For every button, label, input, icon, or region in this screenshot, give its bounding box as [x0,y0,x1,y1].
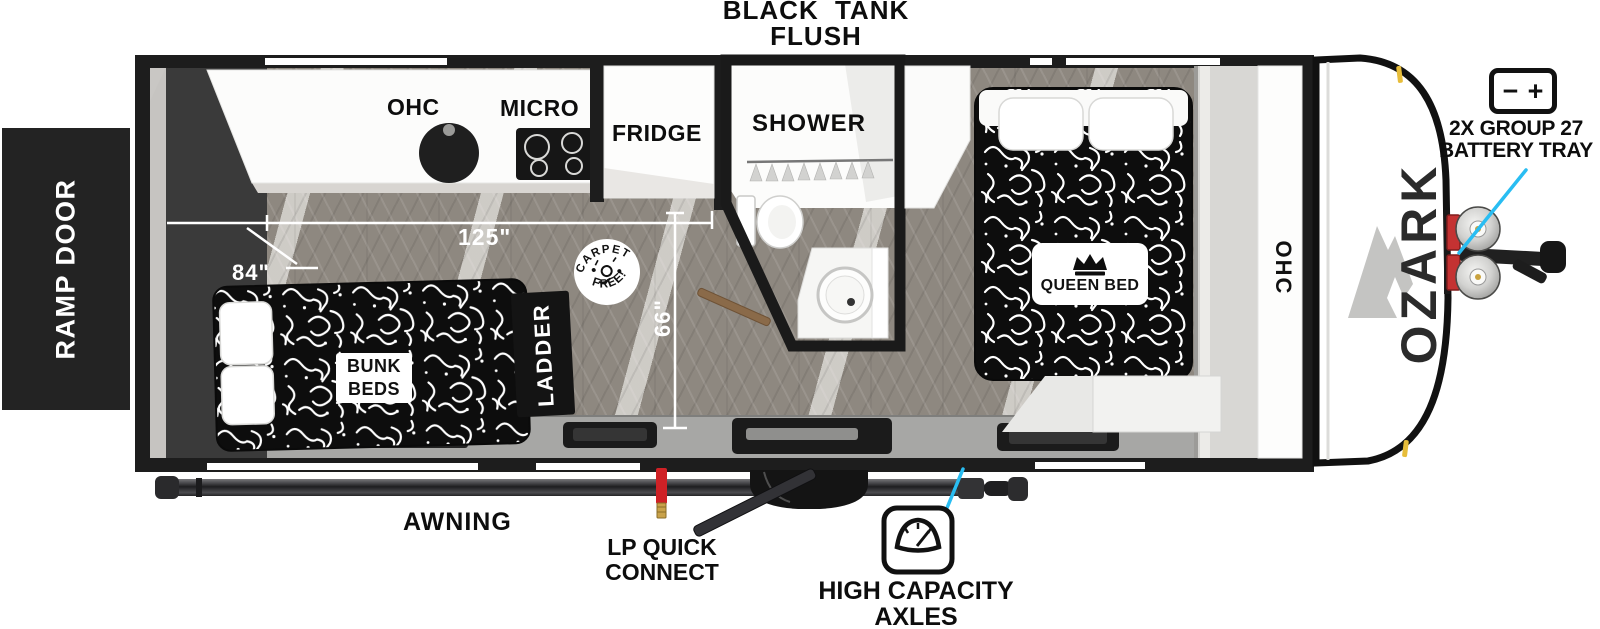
awning-end-cap [155,476,179,499]
lp-label-line1: LP QUICK [605,535,719,560]
coupler [1540,241,1566,273]
kitchen-counter [207,70,598,193]
dimension-125: 125" [458,224,511,251]
dimension-84: 84" [232,260,270,286]
floorplan-canvas: CARPET FREE! [0,0,1600,629]
awning-label: AWNING [403,508,512,537]
queen-bed-label: QUEEN BED [1032,243,1148,305]
battery-plus-sign: + [1528,78,1544,105]
bed-step-angled [1002,376,1093,432]
bunk-label-line1: BUNK [347,355,401,378]
scale-icon [884,508,952,572]
wood-plank [697,287,772,326]
kitchen-faucet [443,124,455,136]
black-tank-flush-label: BLACK TANK FLUSH [723,0,910,49]
black-tank-flush-line2: FLUSH [723,23,910,49]
ladder-label: LADDER [528,303,559,408]
queen-bed [975,88,1192,380]
dimension-66: 66" [650,299,676,337]
hitch-assembly [1444,207,1566,299]
queen-pillow-right [1089,98,1173,150]
shower-label: SHOWER [752,110,866,138]
lp-label-line2: CONNECT [605,560,719,585]
high-capacity-axles-label: HIGH CAPACITY AXLES [818,578,1013,629]
lp-quick-connect-fitting [656,468,667,518]
axles-label-line1: HIGH CAPACITY [818,578,1013,604]
axle-bar [984,481,1012,496]
bathroom-sink [798,248,888,338]
ramp-door-label: RAMP DOOR [51,178,82,359]
bunk-pillow-bottom [221,366,275,425]
kitchen-ohc-label: OHC [387,94,440,121]
micro-label: MICRO [500,95,579,122]
bunk-label-line2: BEDS [348,378,400,401]
brand-logo-text: OZARK [1390,162,1448,365]
front-ohc-label: OHC [1270,241,1296,296]
bathroom [697,60,900,346]
lp-quick-connect-label: LP QUICK CONNECT [605,535,719,585]
cooktop [516,128,598,180]
queen-bed-text: QUEEN BED [1041,277,1140,295]
battery-tray-label: 2X GROUP 27 BATTERY TRAY [1439,118,1593,162]
battery-label-line1: 2X GROUP 27 [1439,118,1593,140]
fridge-label: FRIDGE [612,120,702,147]
bunk-beds-label: BUNK BEDS [336,353,412,403]
battery-label-line2: BATTERY TRAY [1439,140,1593,162]
battery-minus-sign: − [1503,78,1519,105]
crown-icon [1071,254,1109,276]
axles-label-line2: AXLES [818,604,1013,629]
black-tank-flush-line1: BLACK TANK [723,0,910,23]
bunk-pillow-top [219,302,273,365]
bed-bench [1093,376,1221,432]
propane-tank-bottom [1456,255,1500,299]
nightstand [905,66,970,208]
carpet-free-badge: CARPET FREE! [565,230,648,313]
floorplan-artwork: CARPET FREE! [0,0,1600,629]
battery-icon: − + [1489,68,1557,114]
queen-pillow-left [999,98,1083,150]
